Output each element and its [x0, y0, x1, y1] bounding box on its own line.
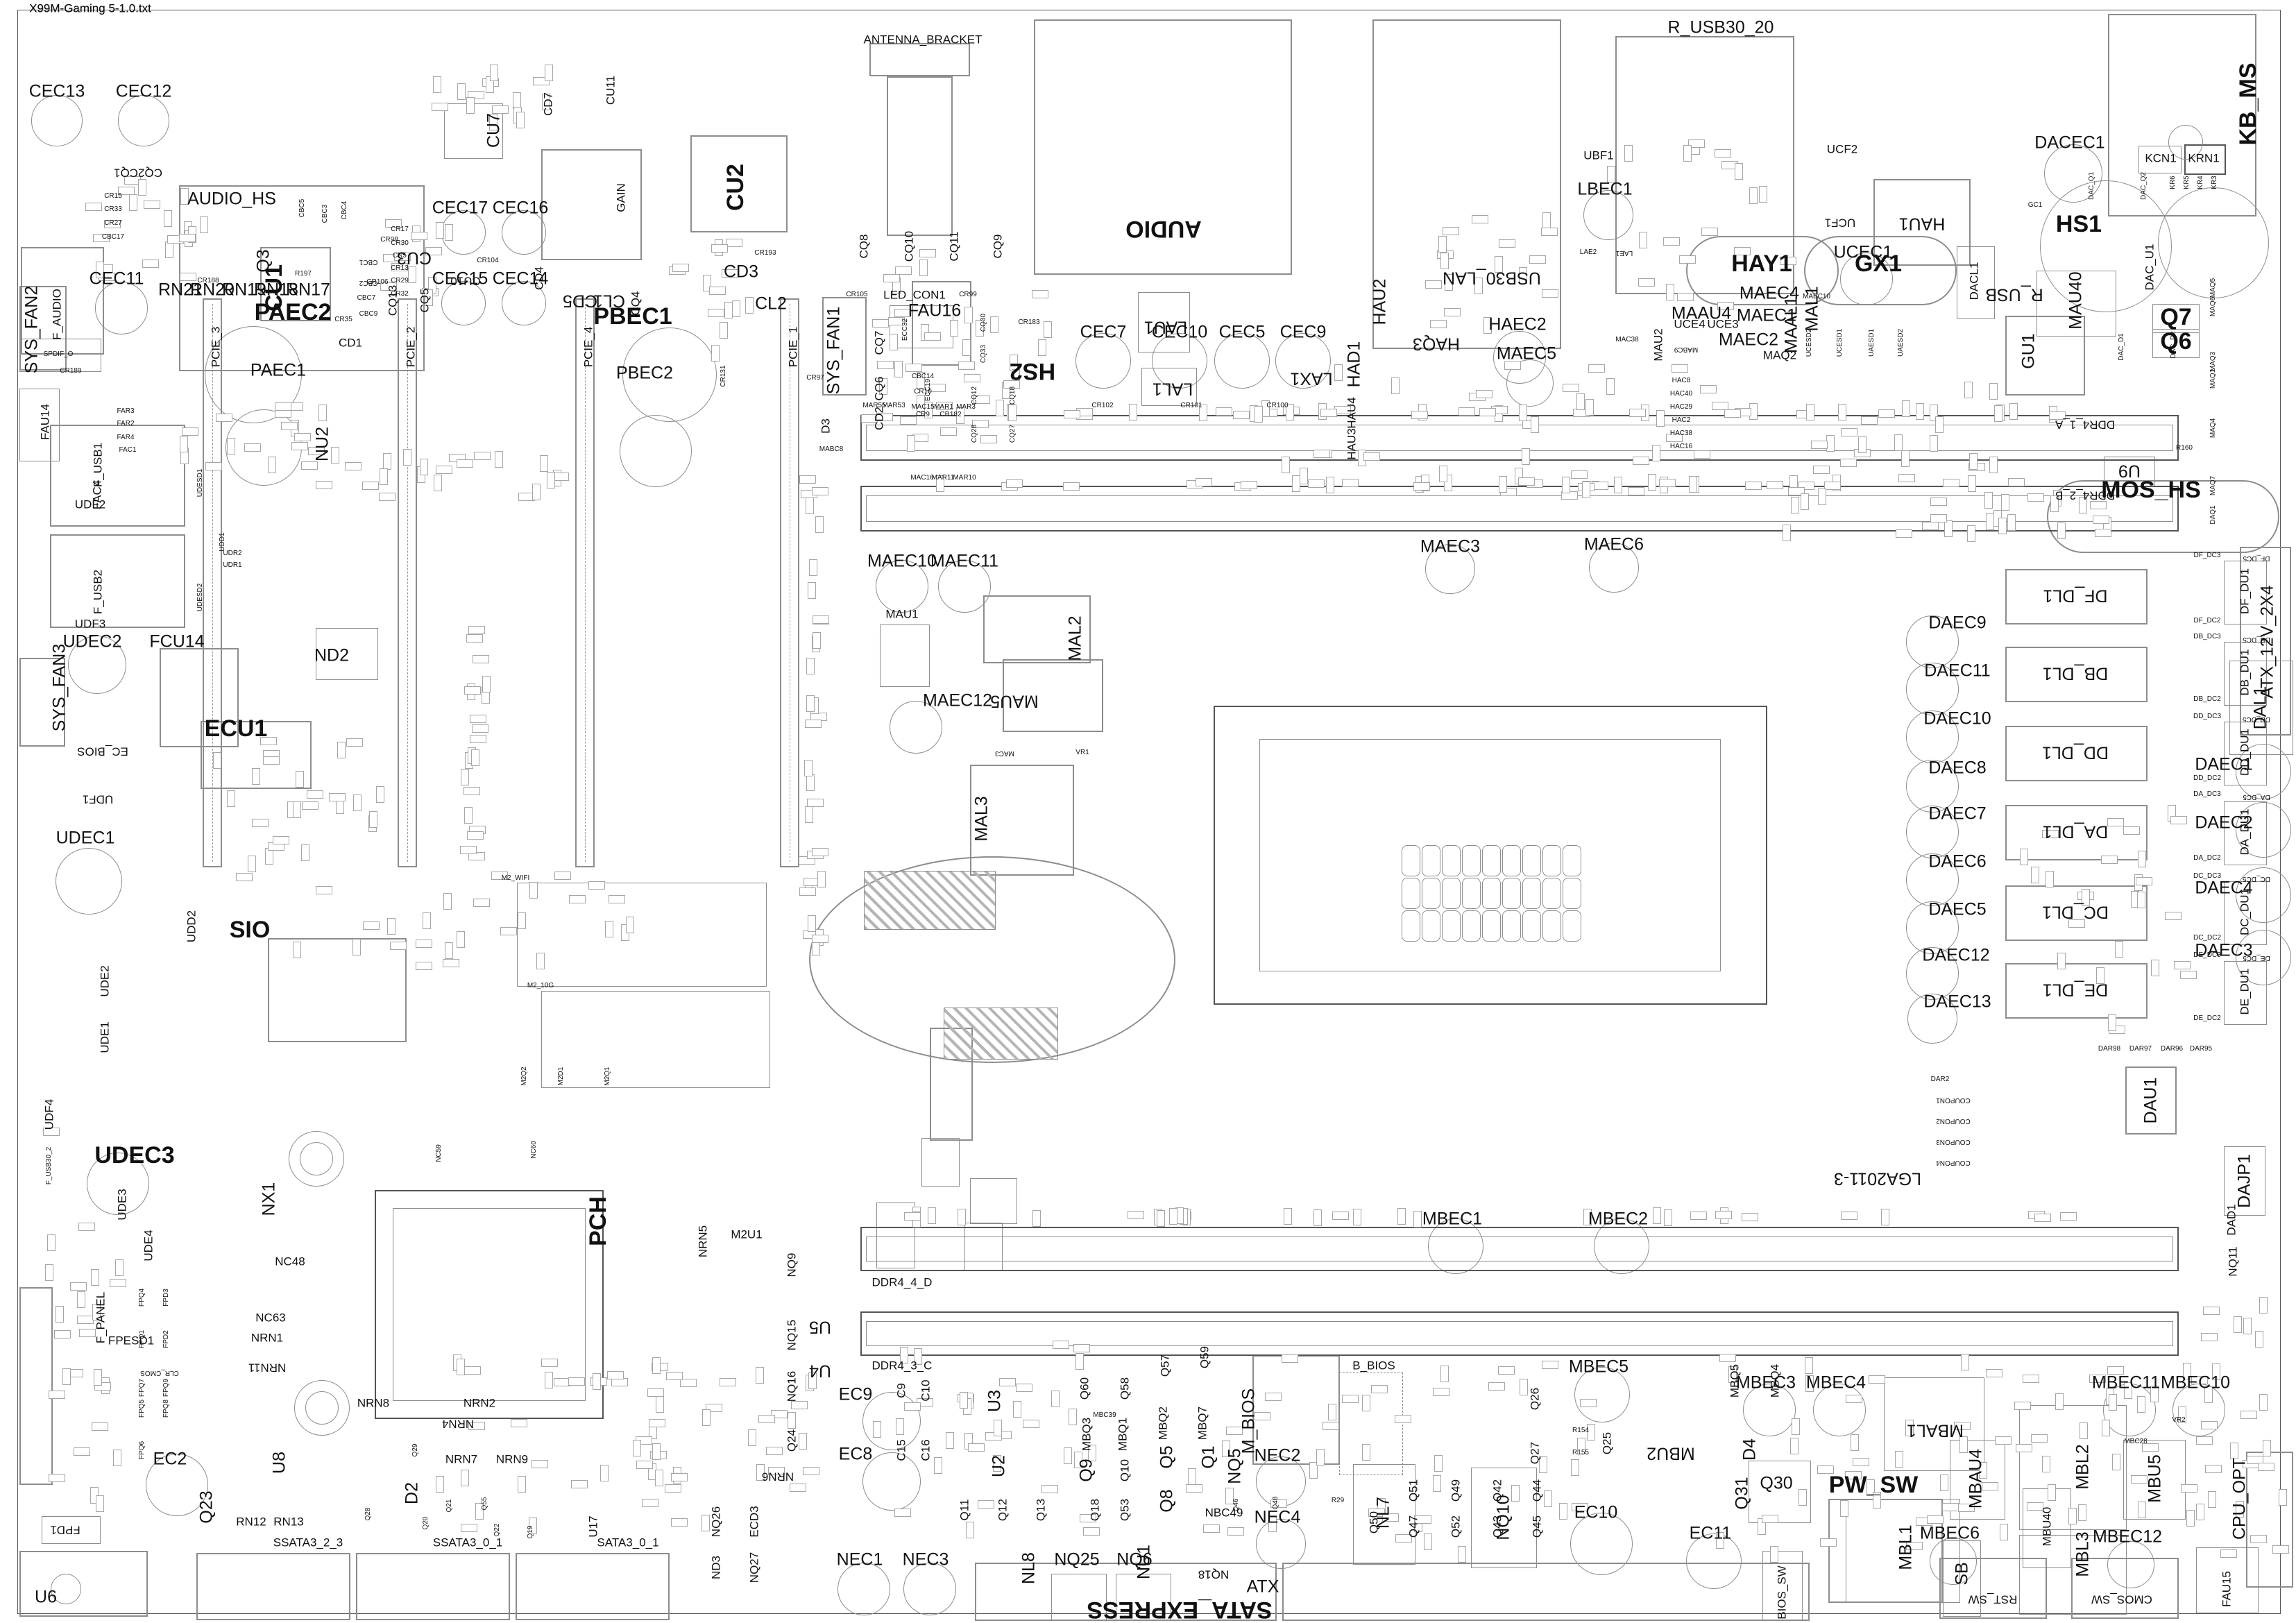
- passive-part: [205, 462, 222, 470]
- component-label-q31: Q31: [1734, 1477, 1751, 1509]
- passive-part: [815, 516, 824, 533]
- passive-part: [2138, 851, 2146, 867]
- component-label-mar11: MAR11: [932, 475, 955, 482]
- component-label-udr1: UDR1: [223, 562, 241, 569]
- passive-part: [1942, 1503, 1959, 1511]
- passive-part: [2258, 1463, 2274, 1471]
- passive-part: [457, 83, 466, 100]
- component-label-dar95: DAR95: [2190, 1046, 2212, 1053]
- component-label-cr13: CR13: [391, 265, 409, 272]
- component-label-cec13: CEC13: [29, 83, 85, 101]
- component-label-hac2: HAC2: [1672, 417, 1691, 424]
- component-label-q30: Q30: [1760, 1475, 1792, 1493]
- component-label-cec7: CEC7: [1080, 324, 1127, 341]
- component-label-nd2: ND2: [314, 647, 349, 665]
- passive-part: [1186, 1484, 1202, 1493]
- passive-part: [416, 962, 432, 970]
- passive-part: [1439, 466, 1447, 482]
- component-label-fau15: FAU15: [2221, 1571, 2233, 1607]
- passive-part: [1542, 289, 1558, 298]
- passive-part: [1989, 383, 1998, 400]
- component-label-q5: Q5: [1159, 1445, 1176, 1468]
- component-label-nq9: NQ9: [786, 1253, 798, 1277]
- component-label-dac-q2: DAC_Q2: [2141, 172, 2148, 200]
- passive-part: [964, 374, 980, 382]
- component-label-mal2: MAL2: [1067, 615, 1085, 661]
- component-label-cd1: CD1: [339, 337, 362, 349]
- component-label-udd2: UDD2: [186, 910, 198, 942]
- component-label-maq5: MAQ5: [2210, 278, 2217, 298]
- passive-part: [1783, 525, 1791, 541]
- component-label-daec10: DAEC10: [1923, 711, 1991, 728]
- component-label-cq5: CQ5: [419, 289, 431, 313]
- passive-part: [2234, 1316, 2242, 1333]
- passive-part: [1498, 1366, 1515, 1375]
- passive-part: [1444, 308, 1461, 316]
- passive-part: [445, 224, 453, 241]
- passive-part: [1767, 481, 1783, 489]
- component-label-clr-cmos: CLR_CMOS: [140, 1369, 179, 1376]
- passive-part: [200, 216, 208, 233]
- component-label-cq18: CQ18: [1010, 386, 1017, 405]
- sata3-0-1-conn: [516, 1553, 670, 1620]
- component-label-mabc10: MABC10: [1803, 294, 1830, 300]
- passive-part: [1157, 1210, 1165, 1227]
- passive-part: [470, 735, 486, 743]
- passive-part: [671, 1518, 688, 1527]
- component-label-pw-sw: PW_SW: [1829, 1473, 1918, 1497]
- passive-part: [1519, 405, 1527, 421]
- passive-part: [1824, 482, 1841, 490]
- socket-cap-array-cell: [1542, 878, 1561, 909]
- component-label-uaesd2: UAESD2: [1898, 329, 1905, 357]
- component-label-daec1: DAEC1: [2195, 756, 2252, 774]
- passive-part: [1571, 470, 1588, 479]
- component-label-q22: Q22: [494, 1524, 501, 1537]
- component-label-q7: Q7: [2160, 305, 2191, 329]
- component-label-db-dc3: DB_DC3: [2193, 634, 2220, 640]
- component-label-mbec12: MBEC12: [2093, 1529, 2162, 1546]
- cap-mbec12: [2107, 1541, 2154, 1588]
- component-label-ucesd2: UCESD2: [1806, 329, 1813, 357]
- component-label-daec5: DAEC5: [1928, 901, 1986, 919]
- passive-part: [1562, 477, 1570, 493]
- passive-part: [1801, 493, 1809, 510]
- passive-part: [919, 249, 936, 257]
- passive-part: [273, 836, 289, 844]
- component-label-far3: FAR3: [117, 408, 134, 415]
- passive-part: [2112, 1454, 2120, 1470]
- socket-cap-array-cell: [1502, 878, 1521, 909]
- passive-part: [62, 1368, 71, 1385]
- component-label-udf1: UDF1: [83, 794, 113, 806]
- passive-part: [766, 1447, 783, 1455]
- passive-part: [904, 1402, 921, 1411]
- passive-part: [1313, 1209, 1322, 1226]
- passive-part: [1188, 1468, 1196, 1485]
- passive-part: [532, 1460, 548, 1468]
- component-label-gx1: GX1: [1855, 252, 1902, 275]
- component-label-q19: Q19: [527, 1526, 534, 1539]
- passive-part: [1588, 364, 1605, 373]
- component-label-da-dc3: DA_DC3: [2193, 791, 2220, 798]
- passive-part: [1749, 187, 1758, 204]
- passive-part: [1770, 1546, 1778, 1563]
- passive-part: [1434, 1455, 1443, 1472]
- component-label-nq26: NQ26: [711, 1506, 722, 1537]
- component-label-cbc3: CBC3: [322, 205, 329, 223]
- passive-part: [807, 799, 824, 807]
- socket-cap-array-cell: [1402, 845, 1420, 876]
- passive-part: [500, 927, 517, 935]
- passive-part: [1666, 284, 1674, 300]
- component-label-usb30-lan: USB30_LAN: [1443, 269, 1541, 287]
- passive-part: [1811, 441, 1828, 449]
- component-label-df-dc2: DF_DC2: [2194, 618, 2221, 624]
- component-label-dac-q1: DAC_Q1: [2089, 172, 2095, 200]
- component-label-cr131: CR131: [720, 365, 727, 386]
- component-label-ec-bios: EC_BIOS: [77, 746, 128, 758]
- passive-part: [804, 760, 813, 776]
- component-label-q12: Q12: [997, 1499, 1009, 1521]
- component-label-mbq3: MBQ3: [1081, 1418, 1093, 1451]
- passive-part: [179, 234, 196, 242]
- passive-part: [748, 1429, 756, 1446]
- component-label-m2q1: M2Q1: [604, 1067, 611, 1085]
- passive-part: [946, 1432, 954, 1449]
- component-label-cr99: CR99: [959, 291, 977, 298]
- component-label-cq30: CQ30: [980, 314, 987, 332]
- passive-part: [799, 887, 816, 896]
- passive-part: [2259, 1394, 2268, 1411]
- passive-part: [2107, 818, 2124, 826]
- passive-part: [1282, 457, 1290, 473]
- passive-part: [711, 244, 728, 253]
- component-label-nc60: NC60: [531, 1141, 538, 1159]
- passive-part: [665, 1484, 681, 1493]
- passive-part: [2255, 1331, 2263, 1348]
- passive-part: [383, 453, 391, 470]
- component-label-cq12: CQ12: [971, 386, 978, 405]
- passive-part: [1961, 1354, 1969, 1370]
- component-label-r197: R197: [295, 271, 312, 278]
- component-label-mbu2: MBU2: [1647, 1445, 1694, 1462]
- passive-part: [732, 300, 740, 317]
- passive-part: [720, 322, 728, 339]
- component-label-de-dl1: DE_DL1: [2043, 981, 2109, 999]
- component-label-cq11: CQ11: [949, 231, 960, 261]
- passive-part: [568, 1377, 585, 1386]
- passive-part: [605, 921, 613, 937]
- component-label-df-dc3: DF_DC3: [2194, 552, 2221, 559]
- component-label-dacec1: DACEC1: [2034, 135, 2104, 152]
- u6-block: [19, 1551, 148, 1617]
- component-label-udf3: UDF3: [75, 618, 105, 630]
- component-label-daec8: DAEC8: [1928, 760, 1986, 777]
- passive-part: [1216, 407, 1232, 416]
- passive-part: [1499, 476, 1507, 493]
- component-label-db-dc2: DB_DC2: [2193, 696, 2220, 703]
- component-label-nq25: NQ25: [1054, 1552, 1099, 1569]
- passive-part: [994, 1420, 1002, 1436]
- component-label-lau1: LAU1: [1144, 318, 1188, 336]
- socket-cap-array-cell: [1522, 845, 1541, 876]
- passive-part: [894, 361, 903, 377]
- passive-part: [593, 1373, 601, 1390]
- passive-part: [529, 882, 538, 899]
- component-label-m-bios: M_BIOS: [1241, 1388, 1258, 1454]
- passive-part: [380, 468, 388, 485]
- component-label-maec5: MAEC5: [1497, 346, 1556, 363]
- component-label-nrn8: NRN8: [357, 1397, 389, 1409]
- passive-part: [1518, 477, 1535, 486]
- passive-part: [473, 899, 490, 907]
- passive-part: [1986, 1369, 2002, 1377]
- m2-10g-slot: [541, 991, 770, 1088]
- passive-part: [1652, 445, 1660, 461]
- component-label-maq4: MAQ4: [2210, 418, 2217, 438]
- socket-cap-array-cell: [1563, 845, 1581, 876]
- component-label-cq27: CQ27: [1010, 425, 1017, 443]
- socket-cap-array-cell: [1422, 845, 1440, 876]
- passive-part: [980, 435, 997, 443]
- passive-part: [1334, 364, 1343, 381]
- component-label-mar3: MAR3: [956, 404, 976, 411]
- passive-part: [671, 1473, 688, 1481]
- component-label-db-dl1: DB_DL1: [2043, 665, 2109, 682]
- component-label-q9: Q9: [1078, 1459, 1096, 1481]
- passive-part: [1425, 280, 1442, 289]
- passive-part: [180, 436, 188, 452]
- passive-part: [495, 451, 503, 468]
- component-label-q57: Q57: [1159, 1354, 1171, 1377]
- component-label-q26: Q26: [1529, 1388, 1541, 1410]
- cap-nec3: [903, 1563, 956, 1615]
- passive-part: [1943, 479, 1959, 487]
- passive-part: [2101, 856, 2118, 864]
- passive-part: [432, 103, 448, 111]
- component-label-cu10: CU10: [450, 275, 480, 287]
- passive-part: [1818, 488, 1826, 505]
- passive-part: [934, 1457, 942, 1474]
- passive-part: [316, 481, 332, 489]
- passive-part: [799, 475, 816, 484]
- socket-cap-array-cell: [1442, 910, 1461, 942]
- socket-cap-array-cell: [1462, 910, 1481, 942]
- passive-part: [1994, 405, 2002, 422]
- passive-part: [353, 794, 362, 811]
- component-label-rst-sw: RST_SW: [1968, 1594, 2018, 1606]
- component-label-mar10: MAR10: [953, 475, 976, 482]
- socket-cap-array-cell: [1422, 878, 1440, 909]
- passive-part: [1438, 236, 1447, 253]
- passive-part: [813, 615, 829, 624]
- component-label-nu2: NU2: [314, 427, 332, 461]
- passive-part: [2201, 1421, 2218, 1429]
- component-label-cr189: CR189: [60, 368, 81, 375]
- component-label-cl2: CL2: [755, 296, 787, 313]
- component-label-cec16: CEC16: [493, 200, 549, 217]
- component-label-dd-dl1: DD_DL1: [2042, 744, 2109, 761]
- component-label-fpd1: FPD1: [50, 1524, 80, 1536]
- passive-part: [1624, 145, 1633, 162]
- component-label-db-du1: DB_DU1: [2239, 649, 2251, 695]
- passive-part: [1838, 404, 1846, 420]
- component-label-q27: Q27: [1529, 1442, 1541, 1464]
- passive-part: [2136, 877, 2152, 885]
- component-label-udr2: UDR2: [223, 550, 241, 557]
- passive-part: [411, 232, 427, 240]
- component-label-rn17: RN17: [286, 282, 330, 299]
- passive-part: [164, 210, 172, 227]
- passive-part: [1896, 529, 1912, 538]
- component-label-cec9: CEC9: [1280, 324, 1327, 341]
- passive-part: [666, 1372, 683, 1380]
- component-label-q29: Q29: [412, 1444, 419, 1457]
- component-label-cbc2: CBC2: [359, 279, 378, 286]
- passive-part: [1967, 525, 1975, 542]
- passive-part: [1424, 1533, 1432, 1550]
- passive-part: [47, 1234, 56, 1251]
- component-label-q6: Q6: [2160, 330, 2191, 353]
- passive-part: [1430, 320, 1447, 328]
- component-label-dau1: DAU1: [2143, 1078, 2160, 1124]
- component-label-mos-hs: MOS_HS: [2101, 478, 2201, 502]
- antenna-bracket-top: [869, 43, 970, 76]
- passive-part: [1391, 377, 1400, 394]
- passive-part: [2272, 1545, 2289, 1554]
- cap-cec11: [95, 282, 148, 334]
- passive-part: [756, 1367, 764, 1384]
- component-label-mac16: MAC16: [910, 475, 933, 482]
- passive-part: [996, 400, 1004, 416]
- passive-part: [532, 484, 541, 500]
- passive-part: [1529, 255, 1546, 264]
- passive-part: [461, 1524, 477, 1532]
- passive-part: [536, 953, 545, 969]
- component-label-q13: Q13: [1035, 1499, 1047, 1521]
- component-label-haec2: HAEC2: [1488, 316, 1546, 334]
- component-label-dd-dc2: DD_DC2: [2193, 775, 2221, 782]
- passive-part: [1069, 1409, 1077, 1425]
- passive-part: [1411, 411, 1428, 419]
- component-label-cr17: CR17: [391, 226, 409, 233]
- cap-pbec2: [620, 415, 692, 487]
- passive-part: [554, 872, 571, 880]
- component-label-ddr4-2-b: DDR4_2_B: [2055, 490, 2115, 502]
- passive-part: [672, 264, 689, 272]
- component-label-cr193: CR193: [754, 250, 776, 257]
- passive-part: [817, 871, 826, 887]
- passive-part: [2034, 1214, 2051, 1222]
- passive-part: [464, 787, 480, 795]
- passive-part: [1984, 492, 1993, 509]
- component-label-udesd1: UDESD1: [197, 469, 204, 498]
- socket-cap-array-cell: [1462, 845, 1481, 876]
- component-label-q60: Q60: [1079, 1377, 1091, 1400]
- passive-part: [1571, 1459, 1579, 1476]
- component-label-lae1: LAE1: [1616, 249, 1633, 256]
- component-label-ddr4-3-c: DDR4_3_C: [872, 1360, 933, 1372]
- component-label-ucf1: UCF1: [1825, 217, 1855, 229]
- passive-part: [227, 438, 235, 454]
- passive-part: [1846, 1395, 1862, 1403]
- passive-part: [1041, 1485, 1058, 1493]
- passive-part: [2240, 1411, 2257, 1419]
- component-label-pcie-1: PCIE_1: [788, 327, 799, 368]
- component-label-cd5: CD5: [563, 292, 597, 309]
- passive-part: [474, 452, 491, 460]
- passive-part: [958, 362, 975, 370]
- passive-part: [1038, 339, 1046, 356]
- component-label-lal1: LAL1: [1153, 380, 1193, 398]
- component-label-cbc5: CBC5: [299, 199, 306, 218]
- component-label-cbc4: CBC4: [341, 201, 348, 220]
- component-label-hac8: HAC8: [1672, 377, 1691, 384]
- component-label-r160: R160: [2176, 445, 2193, 452]
- passive-part: [890, 334, 898, 350]
- passive-part: [745, 297, 754, 314]
- passive-part: [472, 724, 488, 733]
- pcie-slot-3-keyline: [212, 304, 213, 862]
- component-label-uce4: UCE4: [1674, 318, 1705, 330]
- passive-part: [443, 893, 452, 910]
- passive-part: [2115, 941, 2123, 958]
- ckq1-part: [921, 1138, 960, 1187]
- component-label-rn12: RN12: [236, 1516, 266, 1528]
- component-label-cr9: CR9: [916, 411, 930, 418]
- passive-part: [2108, 1014, 2116, 1031]
- component-label-sata3-0-1: SATA3_0_1: [597, 1537, 658, 1549]
- passive-part: [1841, 428, 1857, 436]
- passive-part: [345, 462, 362, 470]
- component-label-maec12: MAEC12: [923, 692, 992, 710]
- cap-ec10: [1570, 1513, 1633, 1575]
- component-label-cr33: CR33: [104, 206, 122, 213]
- component-label-fau14: FAU14: [40, 404, 51, 440]
- passive-part: [1798, 1489, 1807, 1506]
- component-label-hau2: HAU2: [1372, 279, 1389, 325]
- passive-part: [79, 1329, 96, 1337]
- component-label-ude3: UDE3: [117, 1189, 128, 1220]
- component-label-cr104: CR104: [477, 257, 498, 264]
- component-label-q47: Q47: [1408, 1515, 1420, 1538]
- passive-part: [2208, 1491, 2216, 1508]
- passive-part: [1075, 1353, 1084, 1370]
- passive-part: [1064, 1447, 1072, 1464]
- passive-part: [883, 274, 900, 282]
- component-label-daec2: DAEC2: [2195, 815, 2252, 832]
- passive-part: [1715, 1211, 1732, 1219]
- component-label-sys-fan2: SYS_FAN2: [24, 286, 41, 373]
- passive-part: [600, 1465, 609, 1481]
- passive-part: [457, 931, 465, 948]
- component-label-cd7: CD7: [543, 92, 554, 116]
- component-label-u8: U8: [271, 1452, 289, 1474]
- component-label-ude4: UDE4: [143, 1230, 155, 1261]
- component-label-pbec2: PBEC2: [616, 365, 673, 382]
- component-label-c15: C15: [896, 1439, 908, 1461]
- component-label-nrn7: NRN7: [445, 1454, 477, 1465]
- component-label-cpu-opt: CPU_OPT: [2231, 1458, 2249, 1540]
- component-label-dacl1: DACL1: [1968, 262, 1980, 300]
- component-label-mbal1: MBAL1: [1907, 1422, 1964, 1439]
- socket-cap-array-cell: [1522, 910, 1541, 942]
- socket-cap-array-cell: [1462, 878, 1481, 909]
- passive-part: [1927, 1515, 1944, 1524]
- socket-cap-array-cell: [1563, 878, 1581, 909]
- passive-part: [708, 309, 724, 317]
